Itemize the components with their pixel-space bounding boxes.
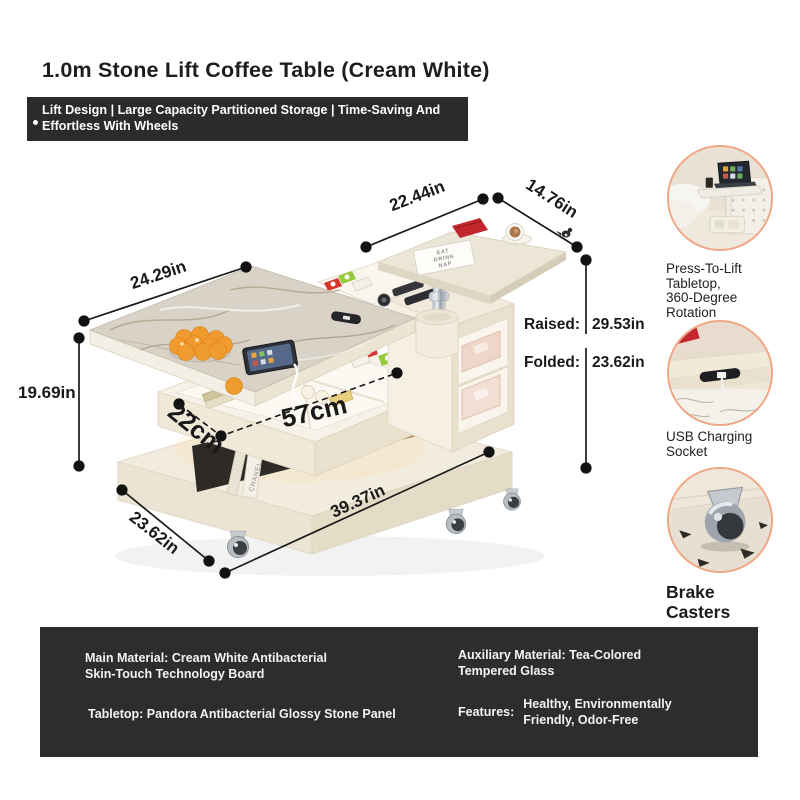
loose-orange (226, 378, 243, 395)
usb-plug (717, 372, 726, 378)
feature-photo-lift-tabletop (667, 145, 773, 251)
dim-label-side-top-width: 22.44in (387, 177, 448, 215)
spec-panel: Main Material: Cream White Antibacterial… (40, 627, 758, 757)
caster-wheel-closeup (705, 487, 746, 542)
product-infographic: 1.0m Stone Lift Coffee Table (Cream Whit… (0, 0, 800, 800)
dim-label-main-top-width: 24.29in (128, 257, 189, 293)
feature-photo-usb-socket (667, 320, 773, 426)
feature-caption-usb: USB Charging Socket (666, 430, 800, 459)
feature-caption-casters: Brake Casters (666, 582, 800, 622)
feature-photo-brake-casters (667, 467, 773, 573)
folded-label: Folded: (524, 354, 580, 371)
spec-features-value: Healthy, Environmentally Friendly, Odor-… (523, 697, 671, 728)
spec-main-material: Main Material: Cream White Antibacterial… (85, 651, 327, 682)
caster-wheel (446, 509, 465, 533)
spec-features: Features: Healthy, Environmentally Frien… (458, 697, 672, 728)
dim-label-height: 19.69in (18, 383, 76, 402)
spec-features-label: Features: (458, 705, 514, 721)
spec-tabletop: Tabletop: Pandora Antibacterial Glossy S… (88, 707, 396, 723)
pole-holder (416, 310, 458, 359)
feature-caption-lift: Press-To-Lift Tabletop, 360-Degree Rotat… (666, 262, 800, 320)
raised-label: Raised: (524, 316, 580, 333)
raised-value: 29.53in (592, 316, 645, 333)
product-dimension-diagram: CHANEL (0, 0, 660, 640)
spec-auxiliary-material: Auxiliary Material: Tea-Colored Tempered… (458, 648, 641, 679)
caster-wheel (504, 489, 521, 510)
folded-value: 23.62in (592, 354, 645, 371)
dim-label-side-top-depth: 14.76in (523, 175, 582, 222)
coffee-cup (503, 224, 532, 245)
cup (706, 178, 713, 188)
